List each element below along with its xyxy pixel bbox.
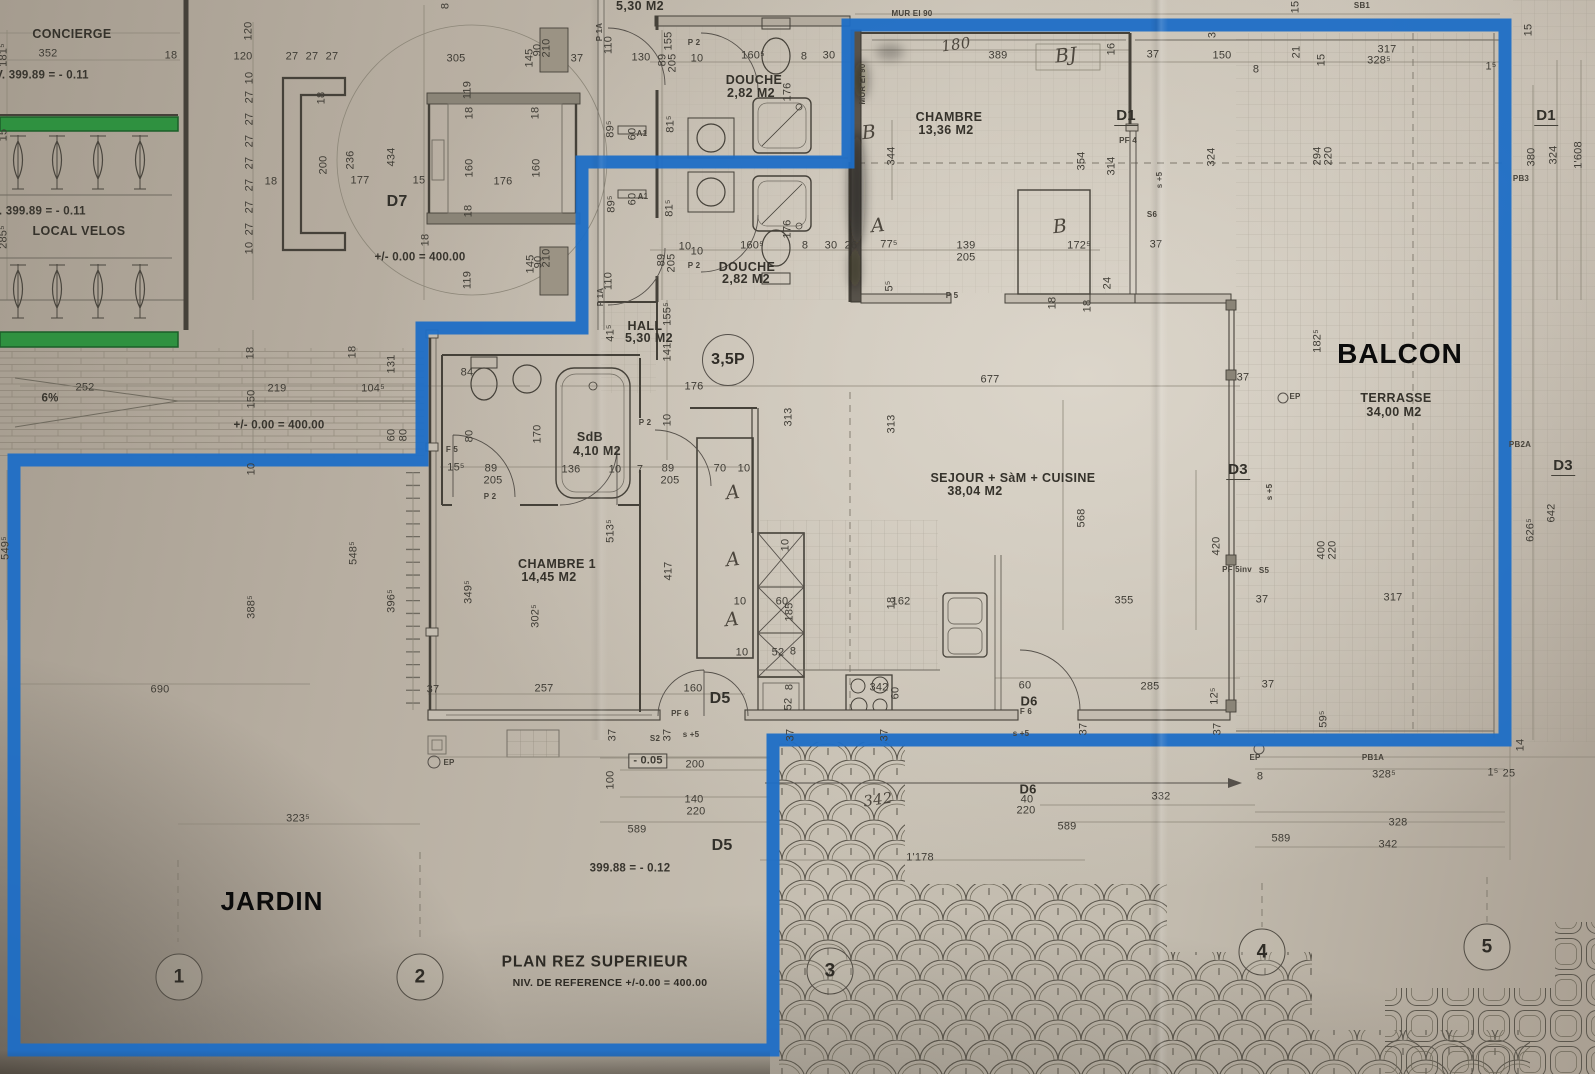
dim-label: 10 xyxy=(663,414,674,427)
dim-label: 8 xyxy=(441,3,452,9)
dim-label: 10 xyxy=(245,72,256,85)
dim-label: 10 xyxy=(738,464,751,475)
dim-label: 27 xyxy=(245,157,256,170)
axis-marker-5: 5 xyxy=(1464,924,1511,971)
opening-tag: SB1 xyxy=(1354,2,1370,10)
dim-label: 7 xyxy=(637,465,643,476)
room-label: 2,82 M2 xyxy=(727,87,775,100)
dim-label: 417 xyxy=(664,562,675,581)
dim-label: 14 xyxy=(1516,739,1527,752)
dim-label: 136 xyxy=(562,465,581,476)
opening-tag: MUR El 90 xyxy=(892,10,933,18)
dim-label: 37 xyxy=(1256,595,1269,606)
dim-label: 18 xyxy=(165,51,178,62)
dim-label: 70 xyxy=(714,464,727,475)
dim-label: 18 xyxy=(531,107,542,120)
dim-label: 27 xyxy=(245,135,256,148)
dim-label: 205 xyxy=(668,54,679,73)
dim-label: 10 xyxy=(781,539,792,552)
handwritten-mark: A xyxy=(724,610,740,630)
axis-marker-4: 4 xyxy=(1239,929,1286,976)
dim-label: 342 xyxy=(870,683,889,694)
dim-label: 210 xyxy=(542,249,553,268)
opening-tag: PB1A xyxy=(1362,754,1384,762)
opening-tag: S6 xyxy=(1147,211,1157,219)
dim-label: 150 xyxy=(1213,51,1232,62)
dim-label: 205 xyxy=(667,254,678,273)
room-label: TERRASSE xyxy=(1360,392,1431,405)
opening-tag: s +5 xyxy=(683,731,700,739)
dim-label: 1⁵ xyxy=(1487,768,1498,779)
level-label: 6% xyxy=(41,393,58,405)
dim-label: 324 xyxy=(1549,146,1560,165)
dim-label: 589 xyxy=(628,825,647,836)
dim-label: 27 xyxy=(286,52,299,63)
dim-label: 10 xyxy=(679,242,692,253)
level-label: +/- 0.00 = 400.00 xyxy=(375,252,466,264)
dim-label: 314 xyxy=(1107,157,1118,176)
room-label: CHAMBRE 1 xyxy=(518,558,596,571)
dim-label: 317 xyxy=(1384,593,1403,604)
dim-label: 181⁵ xyxy=(0,43,10,67)
opening-tag: D1 xyxy=(1534,108,1558,126)
dim-label: 18 xyxy=(465,107,476,120)
dim-label: 89 xyxy=(485,464,498,475)
room-label: 14,45 M2 xyxy=(521,571,576,584)
dim-label: 27 xyxy=(245,201,256,214)
dim-label: 220 xyxy=(1328,541,1339,560)
opening-tag: s +5 xyxy=(1266,484,1274,501)
opening-tag: s +5 xyxy=(1156,172,1164,189)
opening-tag: D3 xyxy=(1551,458,1575,476)
zone-label-balcon: BALCON xyxy=(1337,340,1463,368)
dim-label: 349⁵ xyxy=(464,580,475,604)
opening-tag: D7 xyxy=(387,194,408,210)
dim-label: 18 xyxy=(464,205,475,218)
dim-label: 328⁵ xyxy=(1367,56,1391,67)
dim-label: 12⁵ xyxy=(1210,687,1221,704)
dim-label: 10 xyxy=(691,247,704,258)
dim-label: 172⁵ xyxy=(1067,241,1091,252)
opening-tag: F 5 xyxy=(446,446,458,454)
dim-label: 3 xyxy=(1208,32,1219,38)
room-label: SdB xyxy=(577,431,603,444)
dim-label: 120 xyxy=(234,52,253,63)
dim-label: 131 xyxy=(387,355,398,374)
dim-label: 119 xyxy=(463,271,474,289)
handwritten-mark: A xyxy=(870,216,886,236)
dim-label: 324 xyxy=(1207,148,1218,167)
dim-label: 257 xyxy=(535,684,554,695)
dim-label: 37 xyxy=(1147,50,1160,61)
dim-label: 549⁵ xyxy=(1,536,12,560)
dim-label: 8 xyxy=(802,241,808,252)
dim-label: 8 xyxy=(801,52,807,63)
opening-tag: P 1A xyxy=(597,288,605,306)
dim-label: 120 xyxy=(244,22,255,41)
dim-label: 305 xyxy=(447,54,466,65)
level-label: NIV. 399.89 = - 0.11 xyxy=(0,206,86,218)
dim-label: 84 xyxy=(461,368,474,379)
dim-label: 15 xyxy=(0,129,10,142)
handwritten-mark: B xyxy=(861,123,877,143)
dim-label: 81⁵ xyxy=(666,115,677,132)
dim-label: 37 xyxy=(880,729,891,742)
dim-label: 313 xyxy=(887,415,898,434)
handwritten-mark: B xyxy=(1052,217,1068,237)
dim-label: 10 xyxy=(609,465,622,476)
dim-label: 220 xyxy=(1017,806,1036,817)
dim-label: 677 xyxy=(981,375,1000,386)
dim-label: 60 xyxy=(1019,681,1032,692)
dim-label: 37 xyxy=(608,729,619,742)
opening-tag: A1 xyxy=(638,193,649,201)
dim-label: 27 xyxy=(245,223,256,236)
dim-label: 177 xyxy=(351,176,370,187)
dim-label: 119 xyxy=(463,81,474,99)
opening-tag: MUR El 90 xyxy=(859,64,867,105)
dim-label: 355 xyxy=(1115,596,1134,607)
dim-label: 100 xyxy=(606,771,617,790)
dim-label: 89⁵ xyxy=(607,195,618,212)
dim-label: 690 xyxy=(151,685,170,696)
dim-label: 642 xyxy=(1547,504,1558,523)
room-label: 2,82 M2 xyxy=(722,273,770,286)
room-label: 5,30 M2 xyxy=(616,0,664,12)
dim-label: 176 xyxy=(685,382,704,393)
dim-label: 52 xyxy=(784,698,795,711)
dim-label: 52 xyxy=(772,648,785,659)
dim-label: 15 xyxy=(413,176,426,187)
dim-label: 21 xyxy=(1292,46,1303,59)
level-label: NIV. 399.89 = - 0.11 xyxy=(0,70,89,82)
room-label: 4,10 M2 xyxy=(573,445,621,458)
dim-label: 155⁵ xyxy=(663,302,674,326)
level-label: +/- 0.00 = 400.00 xyxy=(234,420,325,432)
dim-label: 160⁵ xyxy=(740,241,764,252)
dim-label: 328⁵ xyxy=(1372,770,1396,781)
dim-label: 18 xyxy=(265,177,278,188)
handwritten-mark: 180 xyxy=(940,36,971,55)
dim-label: 80 xyxy=(465,430,476,443)
room-label: LOCAL VELOS xyxy=(32,225,125,238)
room-label: SEJOUR + SàM + CUISINE xyxy=(930,472,1095,485)
dim-label: 37 xyxy=(1213,723,1224,736)
dim-label: 252 xyxy=(76,383,95,394)
dim-label: 10 xyxy=(245,242,256,255)
dim-label: 170 xyxy=(533,425,544,444)
dim-label: 27 xyxy=(326,52,339,63)
dim-label: 18 xyxy=(1048,297,1059,310)
dim-label: 37 xyxy=(1262,680,1275,691)
zone-label-jardin: JARDIN xyxy=(221,888,324,914)
opening-tag: S5 xyxy=(1259,567,1269,575)
opening-tag: EP xyxy=(443,759,454,767)
opening-tag: D3 xyxy=(1226,462,1250,480)
dim-label: 205 xyxy=(484,476,503,487)
level-label: 399.88 = - 0.12 xyxy=(590,863,671,875)
dim-label: 89 xyxy=(662,464,675,475)
floor-plan-photo: JARDIN BALCON PLAN REZ SUPERIEUR NIV. DE… xyxy=(0,0,1595,1074)
dim-label: 328 xyxy=(1389,818,1408,829)
axis-marker-1: 1 xyxy=(156,954,203,1001)
dim-label: 185 xyxy=(785,603,796,622)
dim-label: 589 xyxy=(1058,822,1077,833)
dim-label: 15 xyxy=(1524,24,1535,37)
opening-tag: EP xyxy=(1289,393,1300,401)
dim-label: 162 xyxy=(892,597,911,608)
dim-label: 302⁵ xyxy=(531,604,542,628)
dim-label: 220 xyxy=(1324,147,1335,166)
room-label: DOUCHE xyxy=(726,74,783,87)
dim-label: 332 xyxy=(1152,792,1171,803)
dim-label: 396⁵ xyxy=(387,589,398,613)
annotation-layer: JARDIN BALCON PLAN REZ SUPERIEUR NIV. DE… xyxy=(0,0,1595,1074)
dim-label: 18 xyxy=(1083,300,1094,313)
dim-label: 626⁵ xyxy=(1526,518,1537,542)
opening-tag: P 2 xyxy=(688,262,700,270)
dim-label: 27 xyxy=(306,52,319,63)
opening-tag: PF 5inv xyxy=(1222,566,1252,574)
dim-label: 15⁵ xyxy=(447,463,464,474)
dim-label: 139 xyxy=(957,241,976,252)
opening-tag: PB3 xyxy=(1513,175,1529,183)
dim-label: 285 xyxy=(1141,682,1160,693)
dim-label: 110 xyxy=(604,272,615,290)
dim-label: 26 xyxy=(845,241,858,252)
dim-label: 589 xyxy=(1272,834,1291,845)
dim-label: 30 xyxy=(823,51,836,62)
dim-label: 37 xyxy=(1150,240,1163,251)
dim-label: 77⁵ xyxy=(880,240,897,251)
dim-label: 205 xyxy=(661,476,680,487)
dim-label: 176 xyxy=(783,83,794,102)
room-label: 38,04 M2 xyxy=(947,485,1002,498)
dim-label: 160⁵ xyxy=(741,51,765,62)
dim-label: 130 xyxy=(632,53,651,64)
dim-label: 1'608 xyxy=(1574,141,1585,169)
dim-label: 5⁵ xyxy=(885,280,896,291)
dim-label: 37 xyxy=(663,729,674,742)
dim-label: 110 xyxy=(604,36,615,54)
dim-label: 200 xyxy=(319,156,330,175)
dim-label: 160 xyxy=(684,684,703,695)
dim-label: 37 xyxy=(1079,723,1090,736)
dim-label: 18 xyxy=(421,234,432,247)
dim-label: 15 xyxy=(1291,1,1302,14)
dim-label: 313 xyxy=(784,408,795,427)
dim-label: 141 xyxy=(663,343,674,362)
dim-label: 220 xyxy=(687,807,706,818)
dim-label: 37 xyxy=(427,685,440,696)
dim-label: 10 xyxy=(247,463,258,476)
axis-marker-2: 2 xyxy=(397,954,444,1001)
dim-label: 8 xyxy=(785,684,796,690)
handwritten-mark: A xyxy=(725,550,741,570)
dim-label: 81⁵ xyxy=(665,199,676,216)
room-label: CHAMBRE xyxy=(916,111,983,124)
dim-label: 41⁵ xyxy=(606,324,617,341)
dim-label: 420 xyxy=(1212,537,1223,556)
dim-label: 37 xyxy=(786,729,797,742)
dim-label: 104⁵ xyxy=(361,384,385,395)
dim-label: 25 xyxy=(1503,769,1516,780)
dim-label: 568 xyxy=(1077,509,1088,528)
dim-label: 24 xyxy=(1103,277,1114,290)
dim-label: 30 xyxy=(825,241,838,252)
dim-label: 37 xyxy=(571,54,584,65)
dim-label: 60 xyxy=(387,429,398,442)
dim-label: 210 xyxy=(542,39,553,58)
dim-label: 160 xyxy=(532,159,543,178)
dim-label: 285⁵ xyxy=(0,225,10,249)
dim-label: 10 xyxy=(736,648,749,659)
dim-label: 219 xyxy=(268,384,287,395)
dim-label: 18 xyxy=(317,92,328,105)
dim-label: 389 xyxy=(989,51,1008,62)
dim-label: 176 xyxy=(494,177,513,188)
opening-tag: P 2 xyxy=(639,419,651,427)
dim-label: 342 xyxy=(1379,840,1398,851)
dim-label: 150 xyxy=(247,390,258,409)
dim-label: 37 xyxy=(1237,373,1250,384)
dim-label: 155 xyxy=(664,32,675,51)
plan-reference-level: NIV. DE REFERENCE +/-0.00 = 400.00 xyxy=(513,978,708,989)
dim-label: 205 xyxy=(957,253,976,264)
dim-label: 8 xyxy=(1253,65,1259,76)
dim-label: 160 xyxy=(465,159,476,178)
room-label: CONCIERGE xyxy=(32,28,111,41)
opening-tag: PF 6 xyxy=(671,710,689,718)
dim-label: 8 xyxy=(790,647,796,658)
dim-label: 513⁵ xyxy=(606,519,617,543)
dim-label: 16 xyxy=(1107,43,1118,56)
dim-label: 10 xyxy=(691,54,704,65)
opening-tag: EP xyxy=(1249,754,1260,762)
dim-label: 352 xyxy=(39,49,58,60)
dim-label: 60 xyxy=(891,687,902,700)
dim-label: 200 xyxy=(686,760,705,771)
opening-tag: P 2 xyxy=(688,39,700,47)
opening-tag: D5 xyxy=(710,691,731,707)
opening-tag: S2 xyxy=(650,735,660,743)
opening-tag: D1 xyxy=(1114,108,1138,126)
dim-label: 380 xyxy=(1527,148,1538,167)
plan-title: PLAN REZ SUPERIEUR xyxy=(502,954,689,970)
opening-tag: PF 4 xyxy=(1119,137,1137,145)
handwritten-mark: BJ xyxy=(1054,45,1078,66)
dim-label: 89⁵ xyxy=(606,120,617,137)
opening-tag: P 2 xyxy=(484,493,496,501)
opening-tag: PB2A xyxy=(1509,441,1531,449)
room-label: 34,00 M2 xyxy=(1366,406,1421,419)
dim-label: 388⁵ xyxy=(247,595,258,619)
dim-label: 1'178 xyxy=(906,853,934,864)
opening-tag: D5 xyxy=(712,838,733,854)
dim-label: 236 xyxy=(346,151,357,170)
room-label: 13,36 M2 xyxy=(918,124,973,137)
dim-label: 18 xyxy=(246,347,257,360)
dim-label: 18 xyxy=(348,346,359,359)
dim-label: 59⁵ xyxy=(1319,710,1330,727)
dim-label: 182⁵ xyxy=(1313,329,1324,353)
dim-label: 434 xyxy=(387,148,398,167)
dim-label: 10 xyxy=(734,597,747,608)
handwritten-mark: A xyxy=(725,483,741,503)
opening-tag: D6 xyxy=(1020,695,1037,708)
dim-label: 15 xyxy=(1317,54,1328,67)
dim-label: 27 xyxy=(245,91,256,104)
dim-label: 140 xyxy=(685,795,704,806)
dim-label: 323⁵ xyxy=(286,814,310,825)
capacity-badge: 3,5P xyxy=(702,334,754,386)
dim-label: 1⁵ xyxy=(1485,62,1496,73)
dim-label: 27 xyxy=(245,179,256,192)
dim-label: 548⁵ xyxy=(349,541,360,565)
axis-marker-3: 3 xyxy=(807,948,854,995)
opening-tag: P 5 xyxy=(946,292,958,300)
dim-label: 27 xyxy=(245,113,256,126)
opening-tag: s +5 xyxy=(1013,730,1030,738)
level-label: - 0.05 xyxy=(628,754,667,769)
dim-label: 80 xyxy=(399,429,410,442)
dim-label: 344 xyxy=(887,147,898,166)
dim-label: 8 xyxy=(1257,772,1263,783)
dim-label: 176 xyxy=(783,220,794,239)
handwritten-mark: 342 xyxy=(862,791,893,810)
opening-tag: A1 xyxy=(637,130,648,138)
opening-tag: F 6 xyxy=(1020,708,1032,716)
dim-label: 354 xyxy=(1077,152,1088,171)
